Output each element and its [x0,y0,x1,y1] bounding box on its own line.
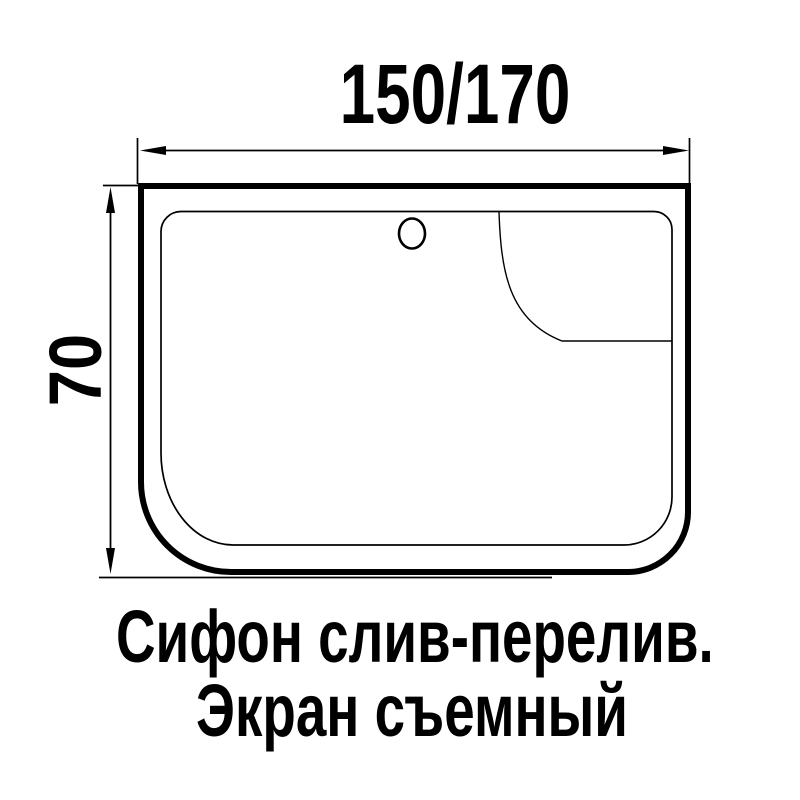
width-dim-arrow-left-icon [140,146,166,155]
width-dimension-label: 150/170 [303,51,607,137]
height-dim-arrow-down-icon [106,548,115,574]
tub-outer-outline [141,186,688,572]
seat-divider-line [499,212,672,341]
caption-line-2: Экран съемный [116,674,708,748]
tub-inner-rim [161,212,672,546]
width-dim-arrow-right-icon [663,146,689,155]
height-dim-arrow-up-icon [106,187,115,213]
bathtub-technical-drawing: 150/170 70 Сифон слив-перелив. Экран съе… [0,0,800,800]
overflow-hole-icon [399,219,425,249]
caption-line-1: Сифон слив-перелив. [116,600,708,674]
height-dimension-label: 70 [36,238,116,502]
